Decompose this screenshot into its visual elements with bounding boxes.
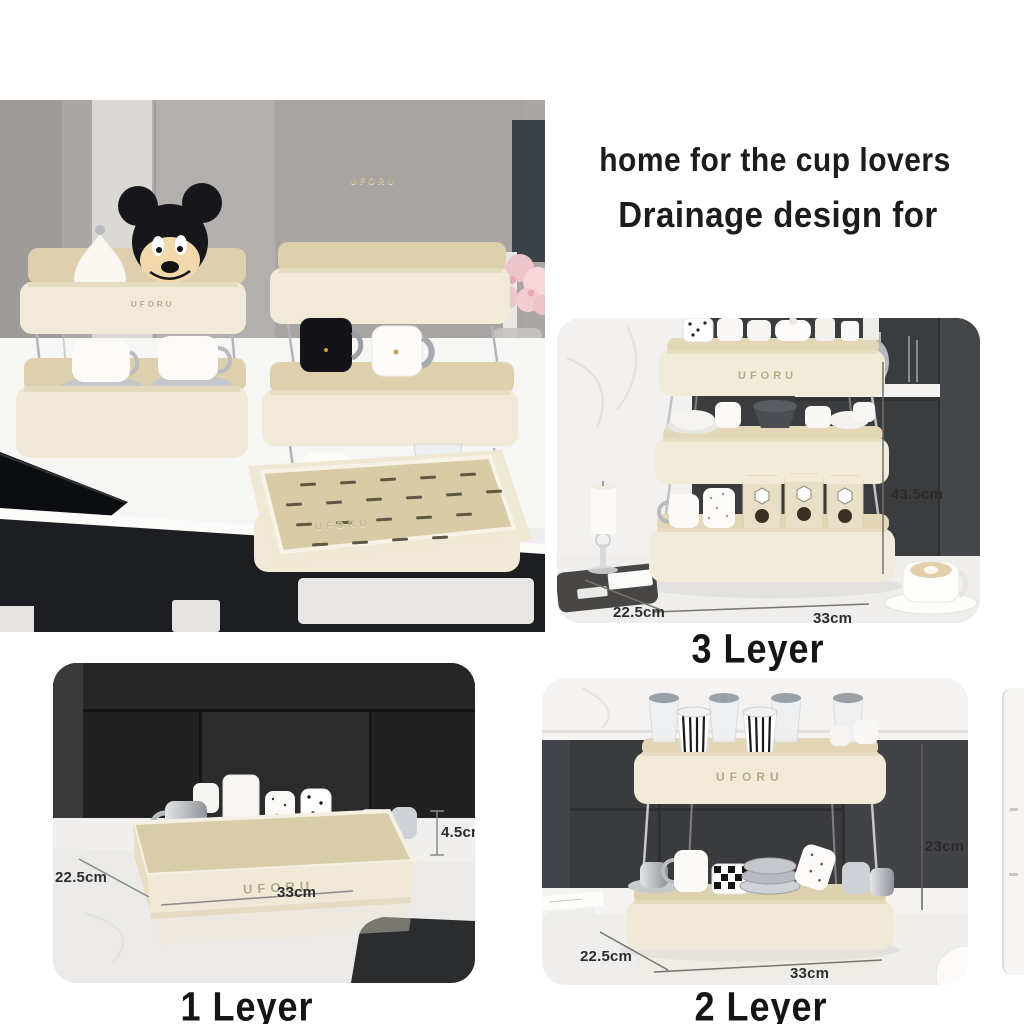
drawer-front [298,578,534,624]
caption-1-layer: 1 Leyer [180,983,313,1024]
brand-embossed: UFORU [716,770,784,784]
drawer-front [0,606,34,632]
dim-depth-label: 22.5cm [613,604,665,621]
coffee-bags [743,474,863,530]
product-collage: home for the cup lovers Drainage design … [0,0,1024,1024]
one-layer-art [53,663,475,983]
kitchen-scene-photo: UFORU UFORU UFORU [0,100,545,632]
three-layer-photo: UFORU 43.5cm 22.5cm 33cm [557,318,980,623]
three-layer-art [557,318,980,623]
one-layer-tray [133,811,413,919]
rack-3-tier [649,318,895,582]
sliver-detail [1009,873,1018,876]
dim-height-label: 43.5cm [891,486,943,503]
two-layer-photo: UFORU 23cm 22.5cm 33cm [542,678,968,985]
dim-width-label: 33cm [790,965,829,982]
dim-height-label: 23cm [925,838,964,855]
one-layer-photo: UFORU 22.5cm 33cm 4.5cm [53,663,475,983]
dim-height-label: 4.5cm [441,824,475,841]
brand-embossed: UFORU [738,370,797,382]
caption-2-layer: 2 Leyer [694,983,827,1024]
drawer-front [172,600,220,632]
brand-embossed-rack-top: UFORU [350,176,397,186]
dim-width-label: 33cm [277,884,316,901]
dim-width-label: 33cm [813,610,852,623]
dark-wall-band [512,120,545,262]
dim-depth-label: 22.5cm [580,948,632,965]
heading-line-1: home for the cup lovers [599,142,951,179]
cropped-photo-sliver [1002,688,1024,975]
striped-bowl-stack [740,858,800,894]
kitchen-scene-art [0,100,545,632]
top-tier-items [683,318,879,342]
heading-line-2: Drainage design for [618,194,937,236]
sliver-detail [1010,808,1018,811]
caption-3-layer: 3 Leyer [691,625,824,672]
black-mug [300,318,361,372]
two-layer-art [542,678,968,985]
brand-embossed-rack-left: UFORU [131,300,174,309]
dim-depth-label: 22.5cm [55,869,107,886]
